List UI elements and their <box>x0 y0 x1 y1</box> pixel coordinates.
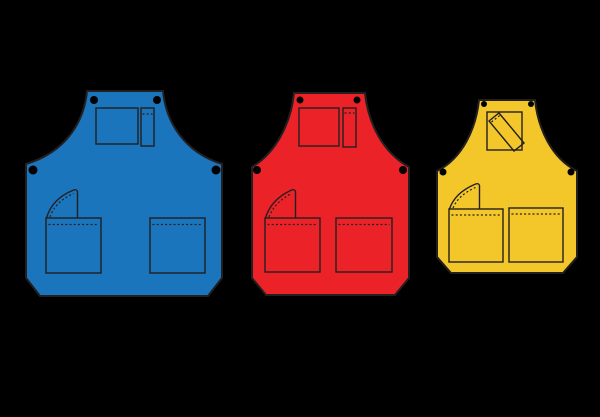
grommet-icon <box>29 166 38 175</box>
grommet-icon <box>253 166 261 174</box>
grommet-icon <box>528 101 534 107</box>
grommet-icon <box>90 96 98 104</box>
grommet-icon <box>354 97 361 104</box>
grommet-icon <box>440 169 447 176</box>
grommet-icon <box>568 169 575 176</box>
grommet-icon <box>212 166 221 175</box>
grommet-icon <box>297 97 304 104</box>
grommet-icon <box>153 96 161 104</box>
grommet-icon <box>399 166 407 174</box>
apron-illustration <box>0 0 600 417</box>
grommet-icon <box>481 101 487 107</box>
